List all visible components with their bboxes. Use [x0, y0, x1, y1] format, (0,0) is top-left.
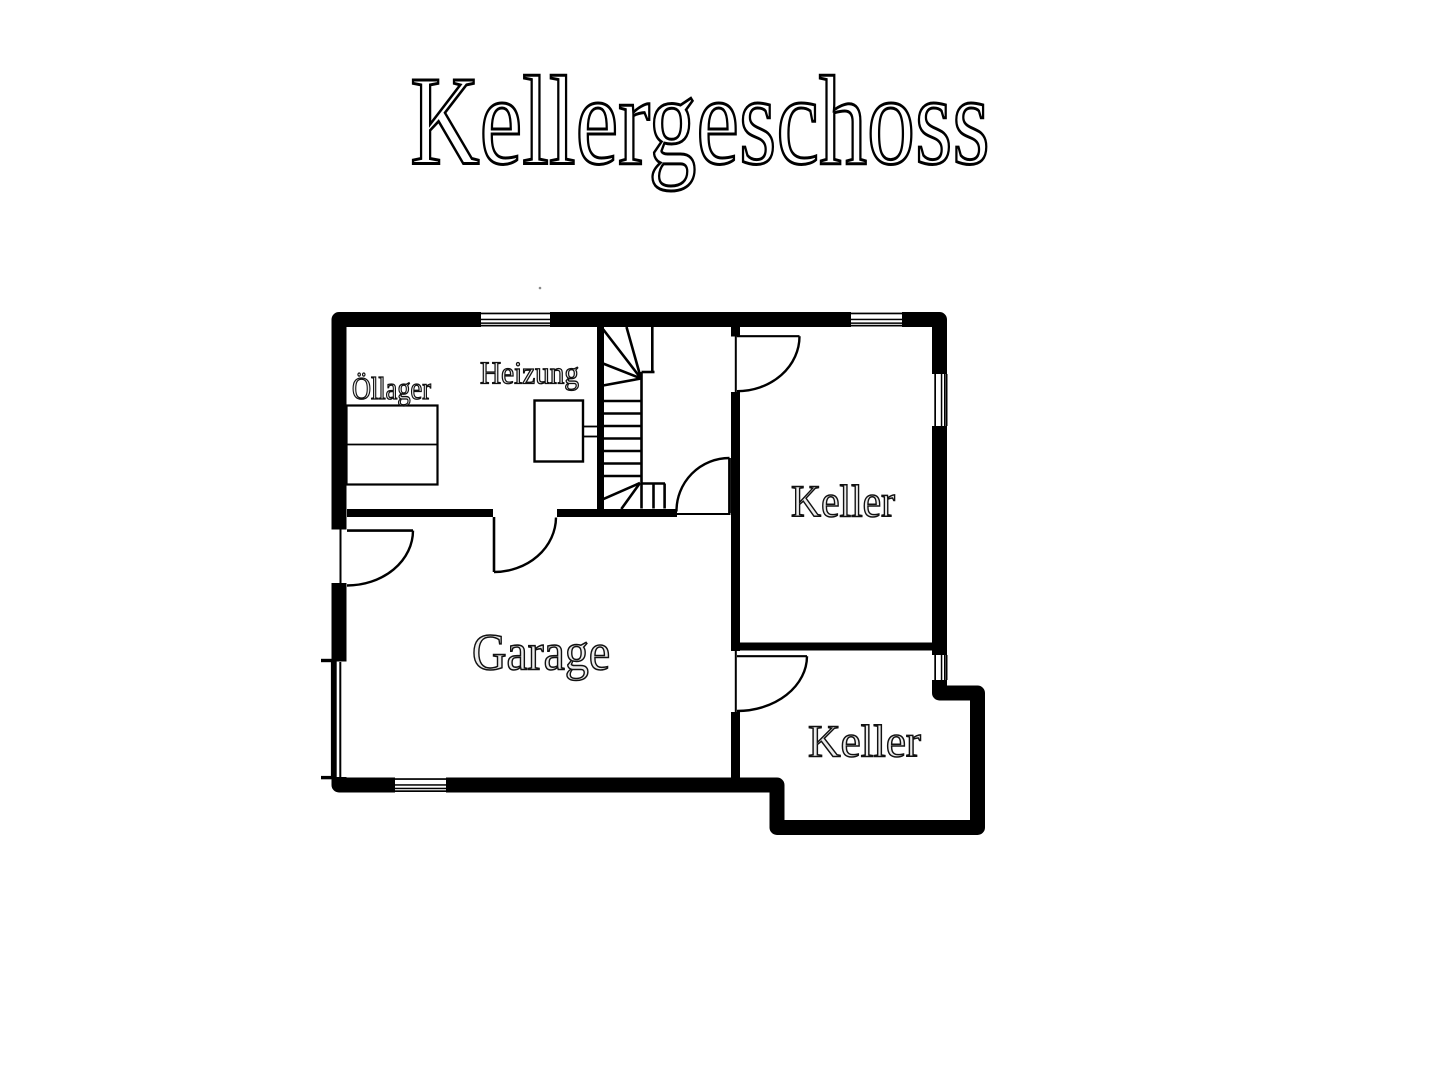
svg-text:Garage: Garage — [472, 623, 610, 681]
svg-text:Keller: Keller — [791, 477, 896, 527]
svg-text:Heizung: Heizung — [480, 355, 579, 391]
svg-text:Öllager: Öllager — [352, 372, 431, 407]
svg-text:Keller: Keller — [808, 715, 921, 766]
svg-text:Kellergeschoss: Kellergeschoss — [410, 52, 989, 192]
